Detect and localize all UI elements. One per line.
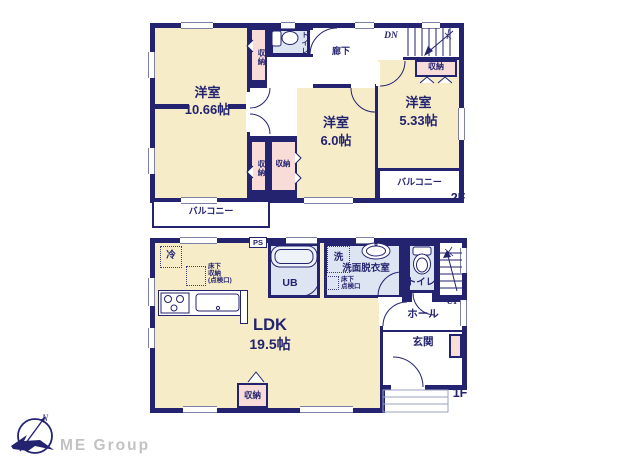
floor2-balcony-right-label: バルコニー — [380, 178, 459, 188]
company-logo-text: ME Group — [60, 437, 150, 455]
floor1-ldk-size: 19.5帖 — [225, 337, 315, 352]
washroom-label: 洗面脱衣室 — [328, 264, 404, 274]
window — [422, 22, 440, 29]
floor2-closet-b-label: 収納 — [252, 148, 265, 188]
floor1-door-opening — [391, 384, 425, 390]
floor1-closet-label: 収納 — [238, 391, 267, 400]
floor2-room-small-name: 洋室 — [381, 96, 456, 110]
floor1-shoe-cabinet — [449, 334, 462, 358]
floor2-door-opening — [376, 62, 380, 86]
underfloor-storage-label: 床下 収納 (点検口) — [208, 263, 248, 284]
window — [148, 328, 155, 348]
floor2-corridor-branch — [267, 57, 313, 88]
floor1-toilet-label: トイレ — [404, 278, 438, 288]
window — [180, 237, 217, 244]
floor1-ldk-name: LDK — [225, 316, 315, 334]
underfloor-hatch-label: 床下 点検口 — [341, 276, 371, 290]
floor1-unit-bath — [268, 243, 320, 298]
window — [148, 52, 155, 78]
floor2-room-large-name: 洋室 — [165, 86, 250, 100]
floor1-door-opening — [379, 302, 384, 326]
window — [183, 406, 217, 413]
floor2-closet-a-label: 収納 — [252, 37, 265, 77]
floor2-closet-d-label: 収納 — [415, 63, 457, 72]
window — [148, 148, 155, 174]
floor2-door-opening — [351, 84, 375, 88]
window — [304, 197, 353, 204]
floor2-toilet-label: トイレ — [297, 30, 308, 55]
pipe-space-label: PS — [249, 237, 267, 248]
hall-label: ホール — [400, 309, 446, 321]
floor1-staircase-area — [440, 243, 462, 295]
entrance-label: 玄関 — [400, 337, 446, 349]
window — [286, 237, 317, 244]
bird-icon — [11, 435, 54, 451]
floor1-up-label: UP — [442, 297, 464, 307]
window — [458, 108, 465, 140]
underfloor-storage-outline — [186, 266, 206, 286]
window — [355, 22, 374, 29]
floor1-floor-label: 1F — [447, 387, 473, 401]
compass-north-label: N — [41, 413, 49, 423]
window — [300, 406, 353, 413]
floor2-floor-label: 2F — [445, 192, 471, 206]
window — [281, 22, 295, 29]
window — [460, 248, 467, 273]
floor1-door-opening — [378, 297, 402, 303]
kitchen-counter — [158, 290, 246, 316]
floor2-corridor-label: 廊下 — [326, 47, 356, 57]
floorplan-canvas: N 洋室 10.66帖 洋室 6.0帖 洋室 5.33帖 収納 収納 収納 収納… — [0, 0, 620, 465]
floor2-room-mid-size: 6.0帖 — [299, 134, 373, 148]
floor2-room-large-size: 10.66帖 — [160, 103, 255, 117]
window — [181, 22, 213, 29]
window — [356, 237, 374, 244]
floor2-dn-label: DN — [380, 31, 402, 41]
compass-logo — [11, 417, 54, 453]
washer-label: 洗 — [327, 253, 350, 263]
floor2-doorway-area — [250, 88, 297, 136]
unit-bath-label: UB — [270, 278, 310, 290]
floor2-balcony-left-label: バルコニー — [152, 207, 270, 217]
floor2-staircase-area — [403, 28, 459, 57]
floor2-room-mid-name: 洋室 — [299, 116, 373, 130]
floor2-door-opening — [310, 30, 314, 54]
underfloor-hatch-outline — [325, 276, 339, 290]
floor2-room-small-size: 5.33帖 — [381, 114, 456, 128]
window — [181, 197, 217, 204]
floor2-closet-c-label: 収納 — [269, 160, 297, 168]
fridge-label: 冷 — [159, 251, 183, 261]
window — [148, 278, 155, 306]
floor1-door-opening — [412, 293, 432, 302]
